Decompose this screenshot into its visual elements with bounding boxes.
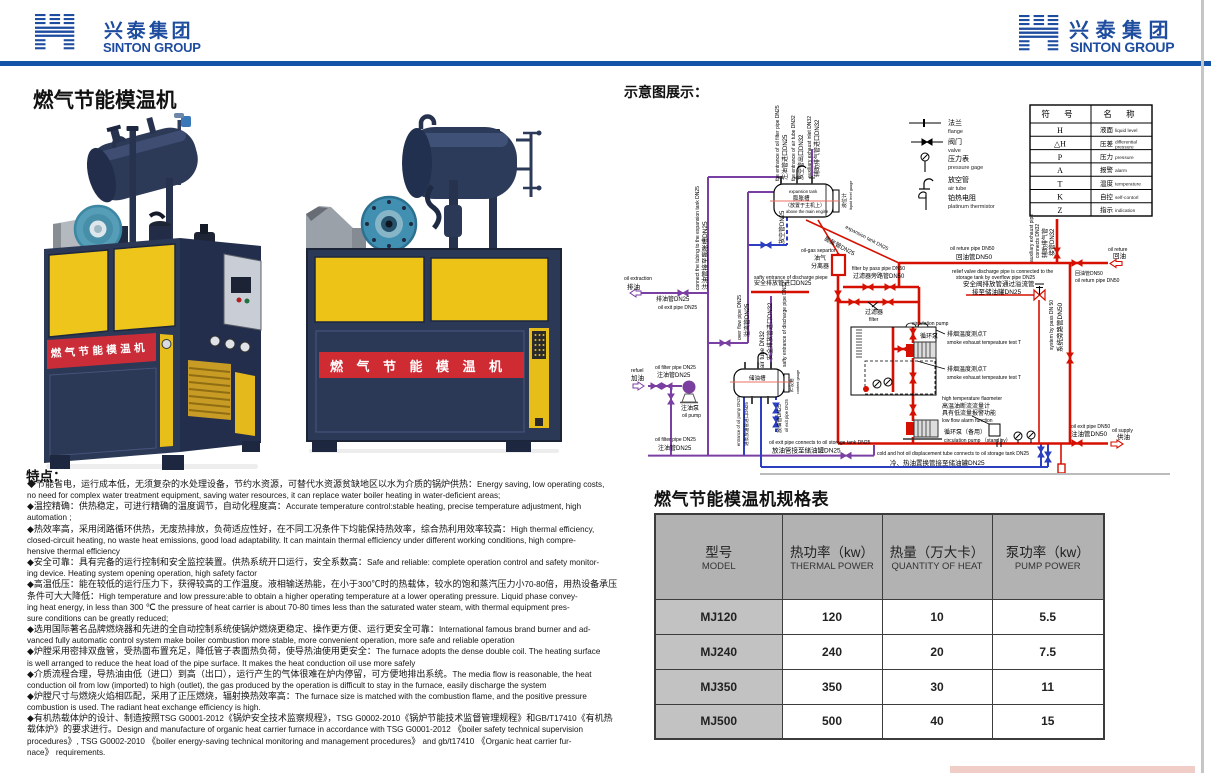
svg-text:铂热电阻: 铂热电阻: [948, 193, 976, 202]
svg-text:alarm: alarm: [1115, 168, 1127, 174]
svg-text:过滤器: 过滤器: [865, 308, 883, 316]
svg-text:oil exit pipe DN50: oil exit pipe DN50: [1071, 424, 1110, 430]
svg-text:the entrance of oil filter pip: the entrance of oil filter pipe DN25: [775, 105, 781, 181]
svg-text:注油管DN25: 注油管DN25: [658, 444, 692, 452]
svg-text:名 称: 名 称: [1103, 109, 1140, 119]
svg-text:接至储油罐DN25: 接至储油罐DN25: [972, 287, 1022, 296]
svg-text:connects DN32: connects DN32: [1035, 224, 1041, 258]
svg-text:entrance of oil pump DN25: entrance of oil pump DN25: [736, 396, 741, 446]
svg-text:oil reture pipe DN50: oil reture pipe DN50: [950, 246, 995, 252]
svg-text:oil extraction: oil extraction: [624, 276, 652, 282]
svg-text:分离器: 分离器: [811, 262, 829, 270]
svg-text:pressure: pressure: [1115, 145, 1134, 151]
svg-text:connect the tubing to the expa: connect the tubing to the expansion tank…: [695, 186, 701, 290]
svg-text:辅助排气管进口DN32: 辅助排气管进口DN32: [813, 119, 821, 177]
svg-text:燃气节能模温机: 燃气节能模温机: [330, 359, 516, 374]
svg-text:△H: △H: [1054, 140, 1066, 149]
svg-text:H: H: [1057, 126, 1063, 135]
svg-text:flange: flange: [948, 129, 963, 135]
svg-text:over flow pipe DN25: over flow pipe DN25: [737, 295, 743, 340]
svg-text:自控: 自控: [1100, 192, 1114, 201]
svg-text:加油: 加油: [631, 373, 644, 382]
svg-text:expansion tank: expansion tank: [789, 189, 818, 194]
svg-text:smoke exhaust tempeature test: smoke exhaust tempeature test T: [947, 375, 1021, 381]
svg-text:安全排放管进口DN32: 安全排放管进口DN32: [766, 302, 774, 360]
svg-text:接管DN32: 接管DN32: [1048, 228, 1056, 256]
svg-text:法兰: 法兰: [948, 118, 962, 127]
svg-text:liquid level: liquid level: [1115, 128, 1137, 134]
svg-text:放油管接至储油罐DN25: 放油管接至储油罐DN25: [772, 446, 841, 455]
svg-text:储油槽: 储油槽: [749, 374, 766, 382]
svg-text:油气: 油气: [814, 254, 826, 262]
svg-text:进泵放油管进口DN25: 进泵放油管进口DN25: [743, 402, 750, 446]
svg-text:放空管: 放空管: [948, 175, 969, 184]
svg-text:filter: filter: [869, 317, 879, 323]
svg-text:冷、热油置换管接至储油罐DN25: 冷、热油置换管接至储油罐DN25: [890, 458, 985, 467]
svg-text:安全阀排放管通过溢流管: 安全阀排放管通过溢流管: [963, 279, 1035, 288]
svg-text:valve: valve: [948, 148, 961, 154]
svg-text:报警: 报警: [1100, 165, 1114, 174]
svg-text:oil exit pipe DN25: oil exit pipe DN25: [784, 399, 789, 432]
svg-text:P: P: [1058, 153, 1063, 162]
svg-text:注油管DN50: 注油管DN50: [1071, 429, 1108, 438]
svg-text:smoke exhaust tempeature test: smoke exhaust tempeature test T: [947, 340, 1021, 346]
svg-text:回油: 回油: [1113, 251, 1126, 260]
svg-text:压差: 压差: [1100, 139, 1114, 148]
svg-text:filter by pass pipe DN50: filter by pass pipe DN50: [852, 266, 905, 272]
svg-text:low flow alarm function: low flow alarm function: [942, 418, 993, 424]
svg-text:content gauge: content gauge: [796, 370, 800, 394]
svg-text:pressure: pressure: [1115, 155, 1134, 161]
svg-text:oil-gas separtor: oil-gas separtor: [801, 248, 836, 254]
svg-text:oil exit pipe connects to oil: oil exit pipe connects to oil storage ta…: [769, 440, 871, 446]
svg-text:回油管DN50: 回油管DN50: [1075, 270, 1103, 277]
svg-text:排油: 排油: [627, 282, 640, 291]
svg-text:具有低流量报警功能: 具有低流量报警功能: [942, 409, 996, 417]
svg-text:循环泵（备用）: 循环泵（备用）: [944, 428, 986, 436]
svg-text:排油管DN25: 排油管DN25: [656, 295, 690, 303]
svg-text:self-contorl: self-contorl: [1115, 195, 1138, 201]
svg-text:温度: 温度: [1100, 179, 1114, 188]
svg-text:oil exit pipe DN25: oil exit pipe DN25: [658, 305, 697, 311]
svg-text:circulation pump: circulation pump: [912, 321, 949, 327]
svg-text:溢流管DN25: 溢流管DN25: [743, 303, 751, 337]
svg-text:注油泵: 注油泵: [681, 404, 699, 412]
svg-text:T: T: [1058, 179, 1063, 188]
svg-text:safty entrance of discharge pi: safty entrance of discharge pipe DN32: [782, 282, 788, 367]
svg-text:注油管进口DN25: 注油管进口DN25: [781, 134, 789, 180]
svg-text:放空管出口DN32: 放空管出口DN32: [797, 134, 805, 180]
svg-text:A: A: [1057, 166, 1063, 175]
svg-text:K: K: [1057, 193, 1063, 202]
svg-text:排烟温度测点T: 排烟温度测点T: [947, 365, 987, 373]
svg-text:系统旁路管DN50: 系统旁路管DN50: [1055, 302, 1064, 352]
svg-text:放空管DN25: 放空管DN25: [778, 210, 786, 244]
svg-text:pressure gage: pressure gage: [948, 165, 983, 171]
svg-text:供油: 供油: [1117, 432, 1130, 441]
svg-text:circulation pump （stand by）: circulation pump （stand by）: [944, 438, 1011, 444]
svg-text:indication: indication: [1115, 208, 1136, 214]
svg-text:oil filter pipe DN25: oil filter pipe DN25: [655, 365, 696, 371]
svg-text:above the main engine: above the main engine: [786, 209, 829, 214]
svg-text:符 号: 符 号: [1041, 109, 1078, 119]
svg-text:oil filter pipe DN25: oil filter pipe DN25: [655, 437, 696, 443]
svg-text:Z: Z: [1058, 206, 1063, 215]
svg-text:液位计: 液位计: [841, 193, 848, 208]
svg-text:system by pass DN 50: system by pass DN 50: [1049, 300, 1055, 350]
svg-text:auxiliary exhaust inlet DN32: auxiliary exhaust inlet DN32: [807, 116, 813, 178]
svg-text:temperature: temperature: [1115, 182, 1141, 188]
svg-text:oil return pipe DN50: oil return pipe DN50: [1075, 278, 1120, 284]
svg-text:platinum thermistor: platinum thermistor: [948, 204, 995, 210]
svg-text:液面: 液面: [1100, 125, 1114, 134]
svg-text:指示: 指示: [1100, 205, 1114, 214]
svg-text:liquid level gauge: liquid level gauge: [849, 181, 853, 210]
svg-text:压力: 压力: [1100, 152, 1113, 161]
svg-text:the entrance of air tube DN32: the entrance of air tube DN32: [791, 115, 797, 181]
svg-text:高温油断流流量计: 高温油断流流量计: [942, 402, 990, 410]
svg-text:压力表: 压力表: [948, 154, 969, 163]
svg-text:阀门: 阀门: [948, 137, 962, 146]
svg-text:排烟温度测点T: 排烟温度测点T: [947, 330, 987, 338]
svg-text:注油管接至膨胀槽DN25: 注油管接至膨胀槽DN25: [700, 221, 709, 290]
svg-text:cold and hot oil displacement: cold and hot oil displacement tube conne…: [877, 451, 1029, 457]
svg-text:过滤器旁路管DN50: 过滤器旁路管DN50: [853, 272, 905, 280]
svg-text:high temperature flaometer: high temperature flaometer: [942, 396, 1002, 402]
svg-text:贮设油: 贮设油: [788, 378, 795, 392]
svg-text:（放置于主机上）: （放置于主机上）: [785, 202, 825, 209]
svg-text:safty entrance of discharge pi: safty entrance of discharge piepe: [754, 275, 828, 281]
svg-text:放油管DN25: 放油管DN25: [775, 404, 783, 433]
svg-text:辅助排气管: 辅助排气管: [1041, 228, 1049, 258]
svg-text:air tube: air tube: [948, 186, 966, 192]
svg-text:注油管DN25: 注油管DN25: [657, 371, 691, 379]
svg-text:air tube DN32: air tube DN32: [760, 330, 766, 368]
svg-text:回油管DN50: 回油管DN50: [956, 252, 993, 261]
svg-text:膨胀槽: 膨胀槽: [793, 194, 810, 202]
svg-text:循环泵: 循环泵: [920, 332, 938, 340]
svg-text:oil pump: oil pump: [682, 413, 701, 419]
svg-text:refuel: refuel: [631, 368, 644, 374]
